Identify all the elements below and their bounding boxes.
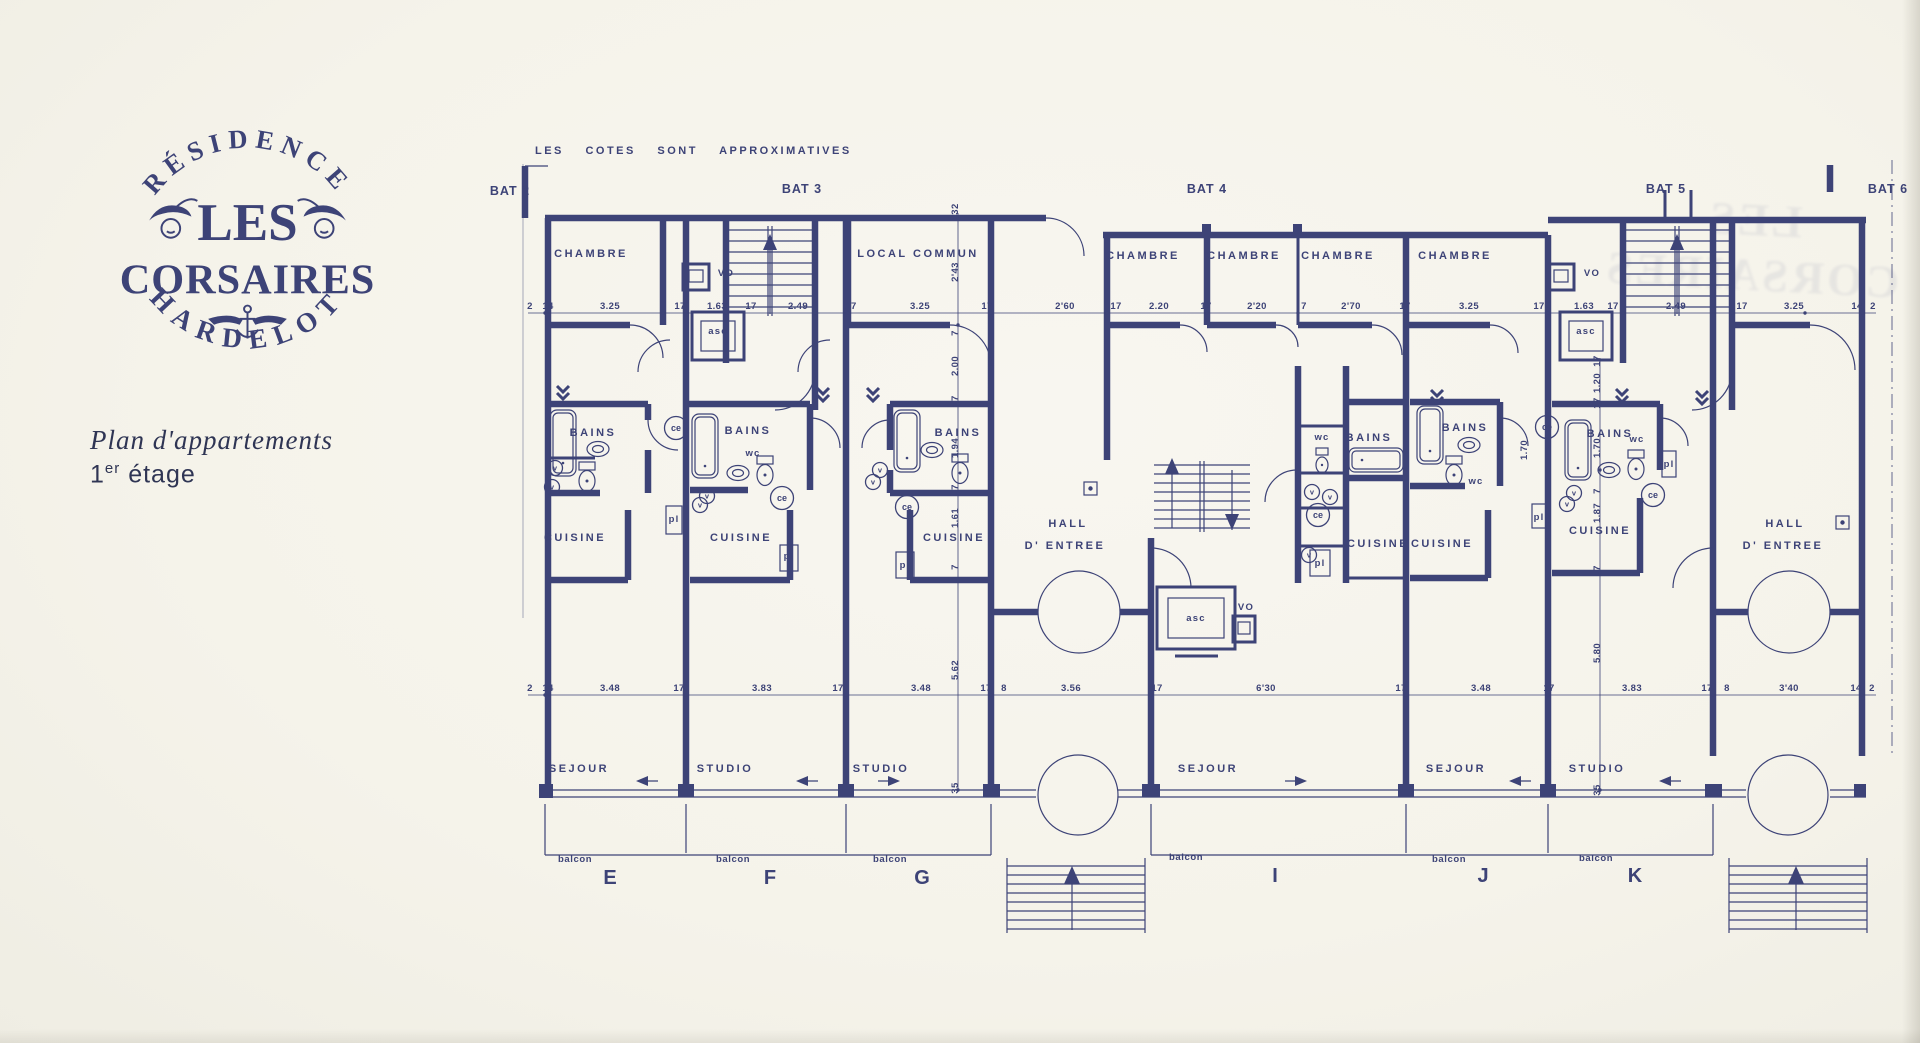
dim-label: 5.62 (950, 660, 961, 680)
dim-label: 17 (1395, 683, 1406, 694)
vertical-dimensions: 322'4372.00171.9471.6175.6235171.20171.7… (950, 203, 1603, 795)
dim-label: 17 (1151, 683, 1162, 694)
room-label: CUISINE (1569, 525, 1631, 537)
room-labels: CHAMBRELOCAL COMMUNCHAMBRECHAMBRECHAMBRE… (544, 248, 1823, 775)
dim-label: 5.80 (1592, 643, 1603, 663)
dim-label: 2.49 (788, 301, 808, 312)
dim-label: 14 (542, 301, 554, 312)
fixture-label: VO (1238, 602, 1254, 613)
direction-arrows (636, 234, 1804, 884)
fixture-label: wc (1313, 432, 1329, 443)
dim-label: 8 (1001, 683, 1007, 694)
room-label: BAINS (1346, 432, 1393, 444)
room-label: D' ENTREE (1025, 540, 1106, 552)
water-heater-symbol-label: ce (1313, 510, 1323, 520)
balcony-label: balcon (1169, 852, 1203, 863)
dim-label: 32 (950, 203, 961, 214)
fixture-label: pl (669, 514, 680, 525)
dim-label: 1.94 (950, 438, 961, 458)
room-label: STUDIO (1569, 763, 1626, 775)
dim-label: 17 (673, 683, 684, 694)
dim-label: 3.48 (600, 683, 620, 694)
dim-label: 17 (1110, 301, 1121, 312)
dim-label: 2 (1869, 683, 1875, 694)
dim-label: 2.49 (1666, 301, 1686, 312)
dim-label: 17 (1533, 301, 1544, 312)
vent-symbol: v (1567, 486, 1582, 501)
fixture-label: pl (900, 560, 911, 571)
bat-label: BAT 2 (490, 184, 530, 198)
dim-label: 3.25 (1459, 301, 1479, 312)
room-label: BAINS (570, 427, 617, 439)
fixture-label: asc (708, 326, 727, 337)
room-label: CUISINE (710, 532, 772, 544)
dim-label: 3.48 (911, 683, 931, 694)
wall-post (1293, 224, 1302, 235)
dim-label: 7 (950, 330, 961, 336)
garbage-chute-right (1548, 264, 1574, 290)
dim-label: 1.63 (707, 301, 727, 312)
window-piers (539, 784, 1866, 798)
room-label: CHAMBRE (1106, 250, 1180, 262)
dim-label: 17 (845, 301, 856, 312)
vent-symbol: v (1323, 490, 1338, 505)
apartment-letter: F (764, 867, 776, 889)
dim-label: 1.20 (1592, 373, 1603, 393)
room-label: CHAMBRE (554, 248, 628, 260)
balcony-label: balcon (558, 854, 592, 865)
walls-thick (525, 165, 1866, 794)
bat-label: BAT 5 (1646, 182, 1686, 196)
apartment-letter: E (603, 867, 616, 889)
dim-label: 17 (832, 683, 843, 694)
fixture-label: pl (1315, 558, 1326, 569)
sink-icons (587, 438, 1620, 481)
dim-label: 17 (1592, 355, 1603, 366)
dim-label: 17 (980, 683, 991, 694)
room-label: CUISINE (923, 532, 985, 544)
dim-label: 3.25 (600, 301, 620, 312)
dim-label: 2 (1870, 301, 1876, 312)
room-label: STUDIO (697, 763, 754, 775)
vent-symbol-label: v (871, 478, 876, 487)
residence-les-corsaires-logo: RÉSIDENCE LES CORSAIRES HARDELOT (100, 100, 395, 400)
dim-label: 2'43 (950, 262, 961, 282)
dim-label: 2'60 (1055, 301, 1075, 312)
dim-label: 3.48 (1471, 683, 1491, 694)
dim-label: 14 (542, 683, 554, 694)
room-label: CHAMBRE (1418, 250, 1492, 262)
fixture-label: wc (1628, 434, 1644, 445)
bathtub-icons (550, 406, 1591, 480)
walls-medium (548, 190, 1691, 578)
vent-symbol-label: v (1310, 488, 1315, 497)
logo-arc-residence: RÉSIDENCE (136, 123, 358, 200)
balcony-labels: balconbalconbalconbalconbalconbalcon (558, 852, 1613, 865)
apartment-letter: K (1628, 865, 1643, 887)
dim-label: 14 (1851, 301, 1863, 312)
dim-label: 17 (950, 395, 961, 406)
dim-label: 2'20 (1247, 301, 1267, 312)
fixture-label: VO (718, 268, 734, 279)
dim-label: 1.87 (1592, 503, 1603, 523)
dim-label: 17 (1200, 301, 1211, 312)
vent-symbol: v (1305, 485, 1320, 500)
logo-les: LES (197, 194, 297, 252)
bat-labels: BAT 2BAT 3BAT 4BAT 5BAT 6 (490, 182, 1908, 198)
plan-title-line1: Plan d'appartements (90, 425, 333, 456)
room-label: CUISINE (1411, 538, 1473, 550)
vent-symbol: v (693, 498, 708, 513)
apartment-letter: G (914, 867, 930, 889)
dim-label: 1.61 (950, 508, 961, 528)
apartment-letters: EFGIJK (603, 865, 1642, 889)
dim-label: 17 (1701, 683, 1712, 694)
fixture-label: asc (1186, 613, 1205, 624)
stair-treads-entrance-right (1729, 858, 1867, 933)
room-label: BAINS (1442, 422, 1489, 434)
fixture-label: VO (1584, 268, 1600, 279)
room-label: HALL (1765, 518, 1804, 530)
plan-title: Plan d'appartements 1er étage (90, 425, 333, 489)
dim-label: 3'40 (1779, 683, 1799, 694)
vent-symbol: v (866, 475, 881, 490)
plan-note: LES COTES SONT APPROXIMATIVES (535, 145, 852, 157)
dim-label: 14 (1850, 683, 1862, 694)
dim-label: 17 (1592, 397, 1603, 408)
bat-label: BAT 4 (1187, 182, 1227, 196)
balcony-lines (545, 804, 1713, 855)
wall-post (1202, 224, 1211, 235)
bat-label: BAT 3 (782, 182, 822, 196)
dim-label: 7 (950, 484, 961, 490)
water-heater-symbol-label: ce (777, 493, 787, 503)
dim-label: 17 (745, 301, 756, 312)
dim-label: 7 (1301, 301, 1307, 312)
water-heater-symbol-label: ce (902, 502, 912, 512)
room-label: HALL (1048, 518, 1087, 530)
vent-symbol-label: v (878, 466, 883, 475)
dim-label: 1.70 (1519, 440, 1530, 460)
dim-label: 35 (950, 782, 961, 794)
vent-symbol-label: v (553, 464, 558, 473)
water-heater-symbol-label: ce (1648, 490, 1658, 500)
room-label: SEJOUR (549, 763, 609, 775)
vent-symbol-label: v (1572, 489, 1577, 498)
dim-label: 3.83 (752, 683, 772, 694)
room-label: STUDIO (853, 763, 910, 775)
fixture-label: asc (1576, 326, 1595, 337)
dim-label: 3.25 (910, 301, 930, 312)
water-heater-symbol: ce (1642, 484, 1665, 507)
vent-symbol: v (1560, 497, 1575, 512)
fixture-label: wc (1467, 476, 1483, 487)
hall-marker-square (1084, 482, 1849, 529)
dim-label: 3.83 (1622, 683, 1642, 694)
fixture-label: wc (744, 448, 760, 459)
room-label: BAINS (935, 427, 982, 439)
stair-treads-entrance-center (1007, 858, 1145, 933)
dim-label: 6'30 (1256, 683, 1276, 694)
vent-symbol-label: v (1328, 493, 1333, 502)
room-label: SEJOUR (1178, 763, 1238, 775)
dim-label: 17 (1736, 301, 1747, 312)
room-label: BAINS (725, 425, 772, 437)
room-label: CHAMBRE (1207, 250, 1281, 262)
dim-label: 7 (950, 564, 961, 570)
room-label: CHAMBRE (1301, 250, 1375, 262)
floor-plan-drawing: LES COTES SONT APPROXIMATIVES (480, 118, 1920, 948)
room-label: CUISINE (544, 532, 606, 544)
room-label: CUISINE (1347, 538, 1409, 550)
dim-label: 17 (1399, 301, 1410, 312)
dim-label: 1.63 (1574, 301, 1594, 312)
water-heater-symbol: ce (771, 487, 794, 510)
dim-label: 3.25 (1784, 301, 1804, 312)
dim-label: 3.56 (1061, 683, 1081, 694)
dim-label: 17 (1607, 301, 1618, 312)
water-heater-symbol-label: ce (671, 423, 681, 433)
dim-label: 35 (1592, 784, 1603, 796)
floor-ordinal: er (105, 460, 120, 477)
vent-symbol-label: v (1307, 551, 1312, 560)
dim-label: 17 (1543, 683, 1554, 694)
floor-number: 1 (90, 460, 105, 488)
fixture-label: pl (1534, 512, 1545, 523)
dim-label: 8 (1724, 683, 1730, 694)
floor-word: étage (128, 460, 196, 488)
room-label: LOCAL COMMUN (857, 248, 978, 260)
dim-label: 2 (527, 301, 533, 312)
dim-label: 2.00 (950, 356, 961, 376)
dim-label: 17 (674, 301, 685, 312)
water-heater-symbol-label: ce (1542, 422, 1552, 432)
dim-label: 7 (1592, 565, 1603, 571)
dim-label: 17 (981, 301, 992, 312)
corsair-face-right-icon (298, 199, 346, 237)
corsair-face-left-icon (149, 199, 197, 237)
fixture-label: pl (784, 551, 795, 562)
vent-symbol: v (1302, 548, 1317, 563)
room-label: D' ENTREE (1743, 540, 1824, 552)
vent-symbol-label: v (1565, 500, 1570, 509)
fixture-label: pl (1664, 459, 1675, 470)
room-label: SEJOUR (1426, 763, 1486, 775)
balcony-label: balcon (1579, 853, 1613, 864)
bat-label: BAT 6 (1868, 182, 1908, 196)
window-band (545, 790, 1866, 797)
dim-label: 2'70 (1341, 301, 1361, 312)
dim-label: 2.20 (1149, 301, 1169, 312)
dim-label: 2 (527, 683, 533, 694)
balcony-label: balcon (873, 854, 907, 865)
apartment-letter: I (1272, 865, 1278, 887)
plan-title-line2: 1er étage (90, 460, 333, 489)
balcony-label: balcon (716, 854, 750, 865)
apartment-letter: J (1477, 865, 1488, 887)
balcony-label: balcon (1432, 854, 1466, 865)
dim-label: 1.70 (1592, 438, 1603, 458)
scanned-floorplan-sheet: { "logo": { "residence": "RÉSIDENCE", "l… (0, 0, 1920, 1043)
dim-label: 7 (1592, 488, 1603, 494)
